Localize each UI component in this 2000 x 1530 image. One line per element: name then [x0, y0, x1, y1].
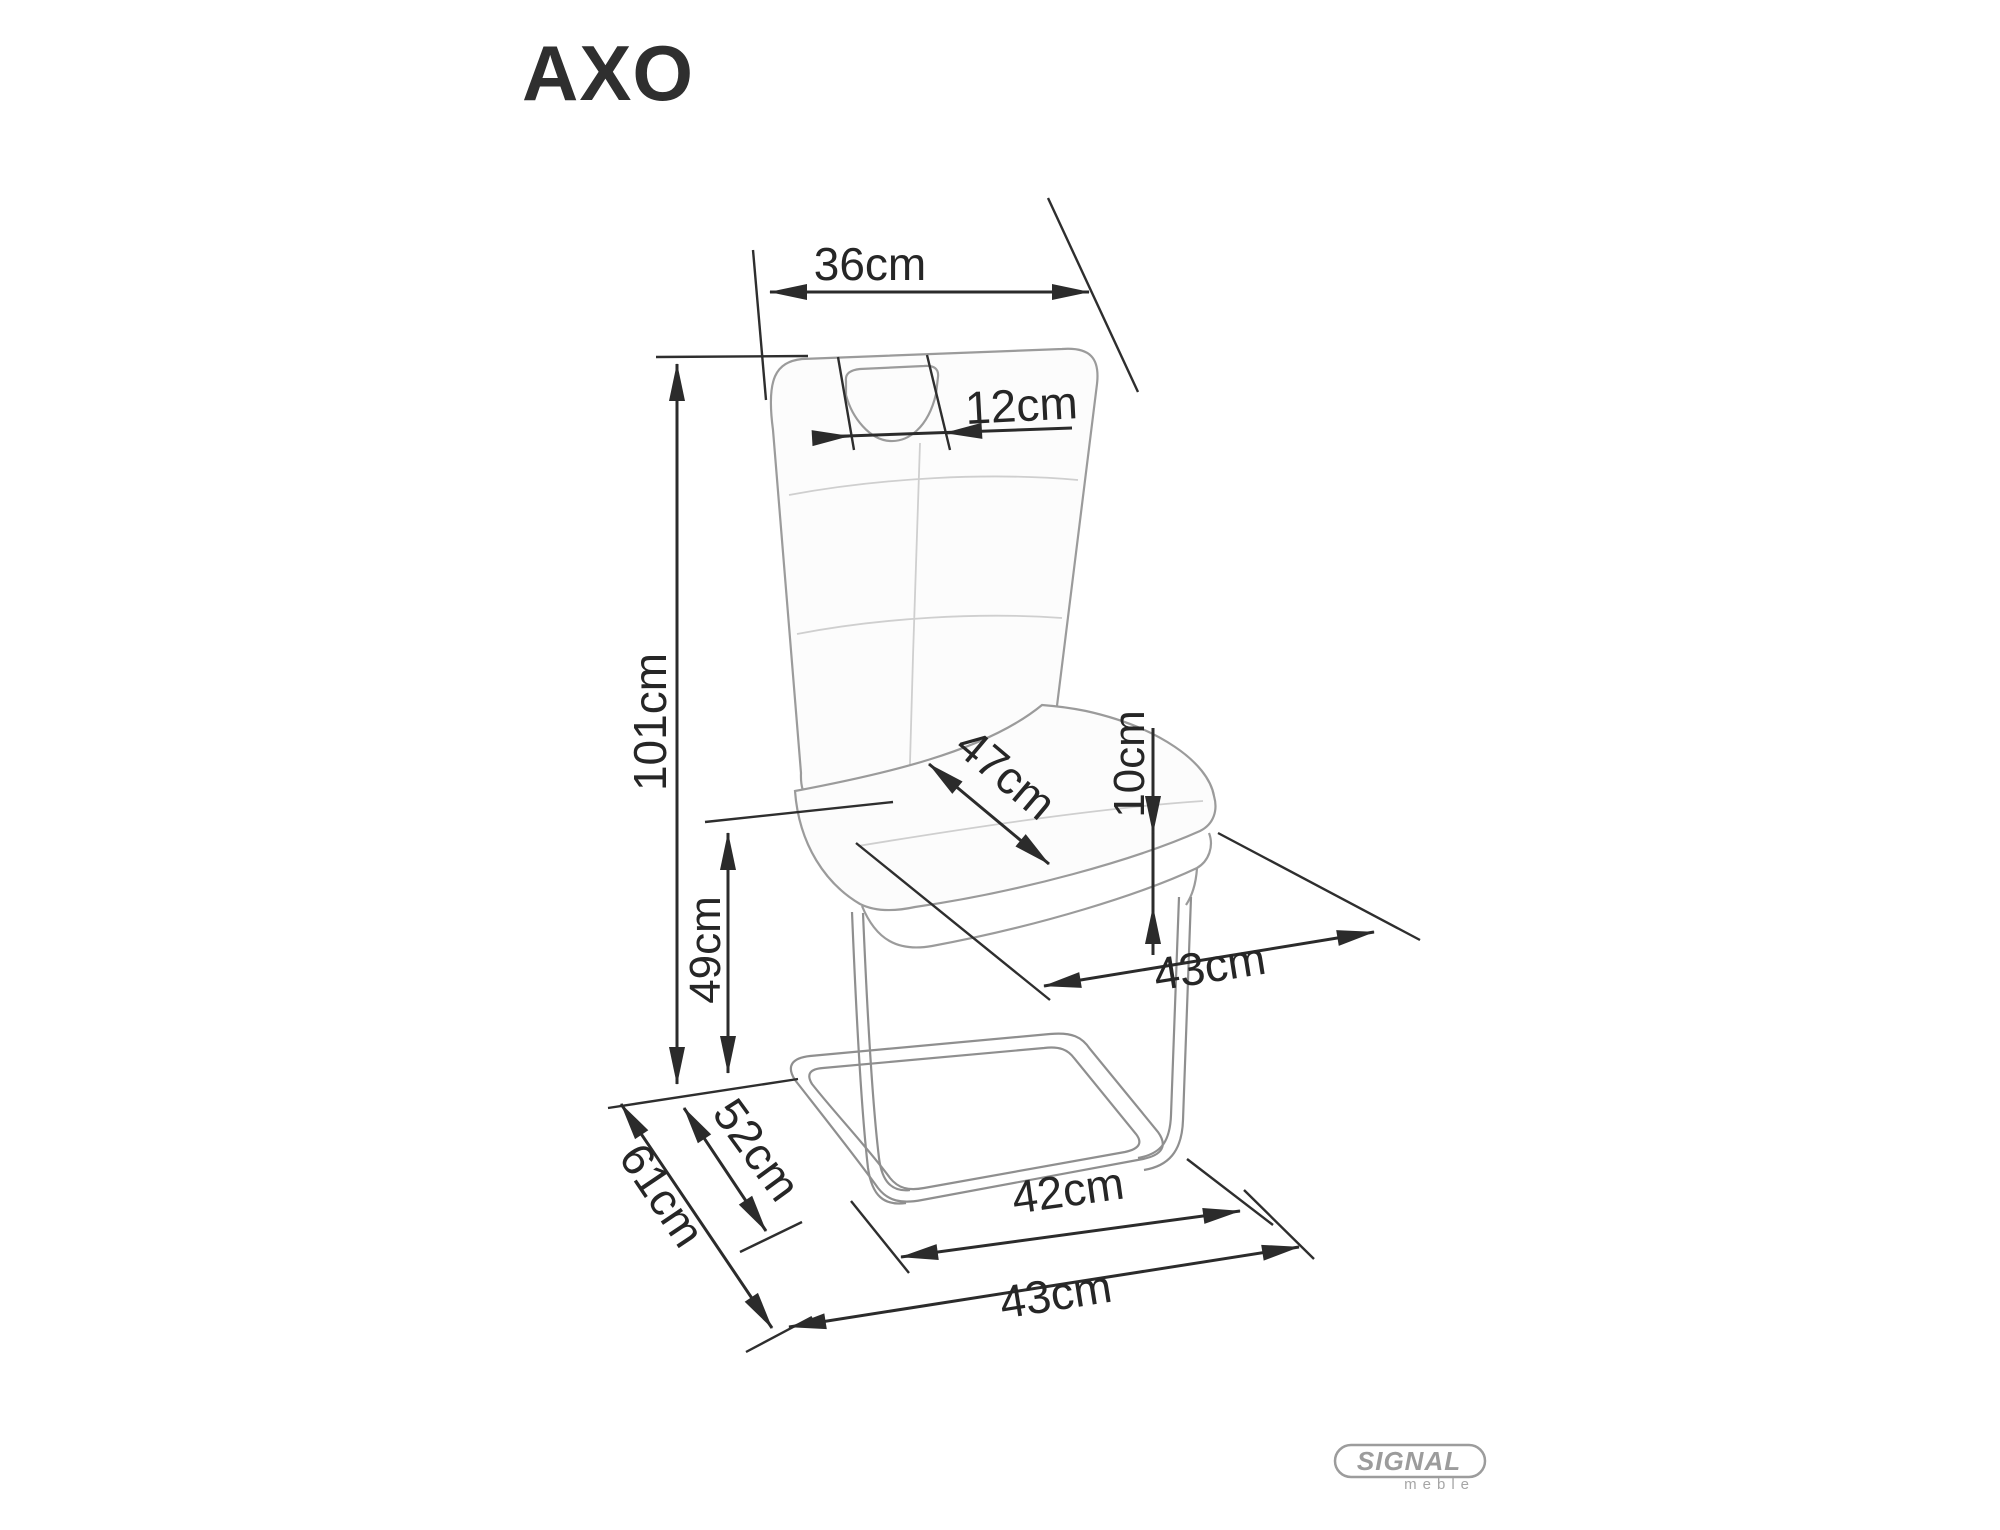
dimension-label: 52cm: [703, 1089, 811, 1211]
dimension-label: 42cm: [1008, 1157, 1127, 1224]
extension-line: [753, 250, 766, 400]
floor-reference-line: [608, 1079, 798, 1108]
extension-line: [1218, 833, 1420, 940]
logo-brand-text: SIGNAL: [1357, 1446, 1461, 1476]
front-leg-tube-inner: [863, 913, 910, 1190]
reference-line: [746, 1317, 812, 1352]
rear-leg-tube-inner: [1144, 897, 1191, 1170]
dimension-label: 10cm: [1105, 710, 1154, 818]
dimension-base-inner-width: 42cm: [851, 1157, 1273, 1273]
dimension-label: 61cm: [609, 1134, 715, 1256]
dimension-label: 12cm: [964, 376, 1079, 434]
dimension-label: 49cm: [681, 896, 730, 1004]
dimension-arrow: [814, 436, 849, 438]
rear-leg-tube-outer: [1138, 897, 1179, 1158]
extension-line: [851, 1201, 909, 1273]
reference-line: [656, 356, 808, 357]
dimension-label: 101cm: [624, 653, 676, 791]
dimension-diagram: AXO 36cm 12: [0, 0, 2000, 1530]
dimension-label: 36cm: [814, 238, 926, 290]
dimension-line: [901, 1211, 1240, 1257]
brand-logo: SIGNAL meble: [1335, 1445, 1485, 1493]
product-title: AXO: [522, 29, 694, 117]
reference-line: [740, 1222, 802, 1252]
dimension-label: 43cm: [996, 1260, 1115, 1329]
dimension-label: 43cm: [1150, 932, 1269, 1001]
logo-subtitle-text: meble: [1404, 1476, 1475, 1493]
